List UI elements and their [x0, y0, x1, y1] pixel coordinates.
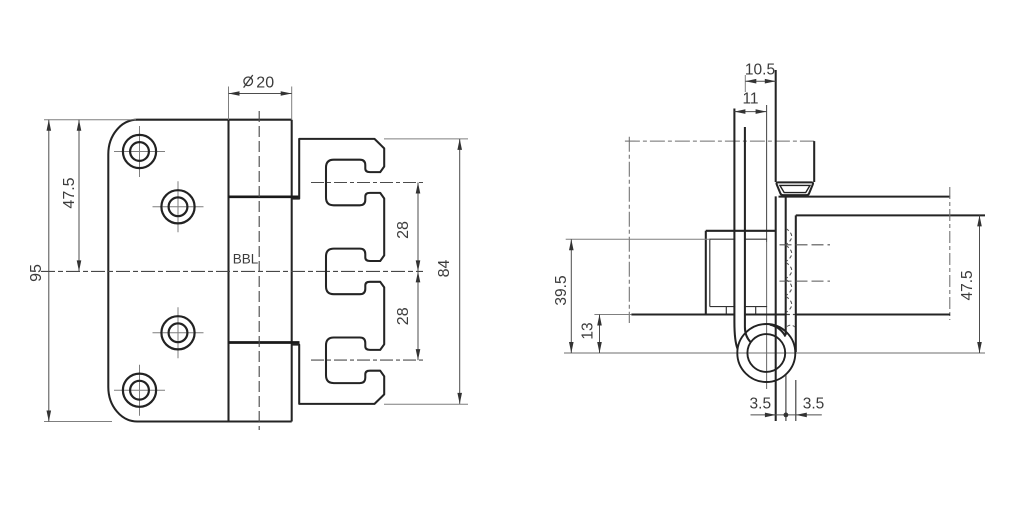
svg-text:95: 95: [28, 264, 45, 282]
svg-text:39.5: 39.5: [553, 275, 570, 305]
svg-text:20: 20: [256, 74, 274, 91]
svg-text:84: 84: [436, 260, 453, 278]
svg-text:11: 11: [742, 90, 758, 107]
svg-text:47.5: 47.5: [959, 270, 976, 300]
svg-text:13: 13: [580, 322, 597, 339]
svg-text:28: 28: [395, 221, 412, 239]
svg-text:10.5: 10.5: [745, 62, 775, 79]
svg-text:3.5: 3.5: [750, 396, 772, 413]
svg-text:28: 28: [395, 307, 412, 325]
svg-text:BBL: BBL: [233, 252, 259, 267]
svg-text:3.5: 3.5: [803, 396, 825, 413]
svg-text:47.5: 47.5: [61, 177, 78, 208]
